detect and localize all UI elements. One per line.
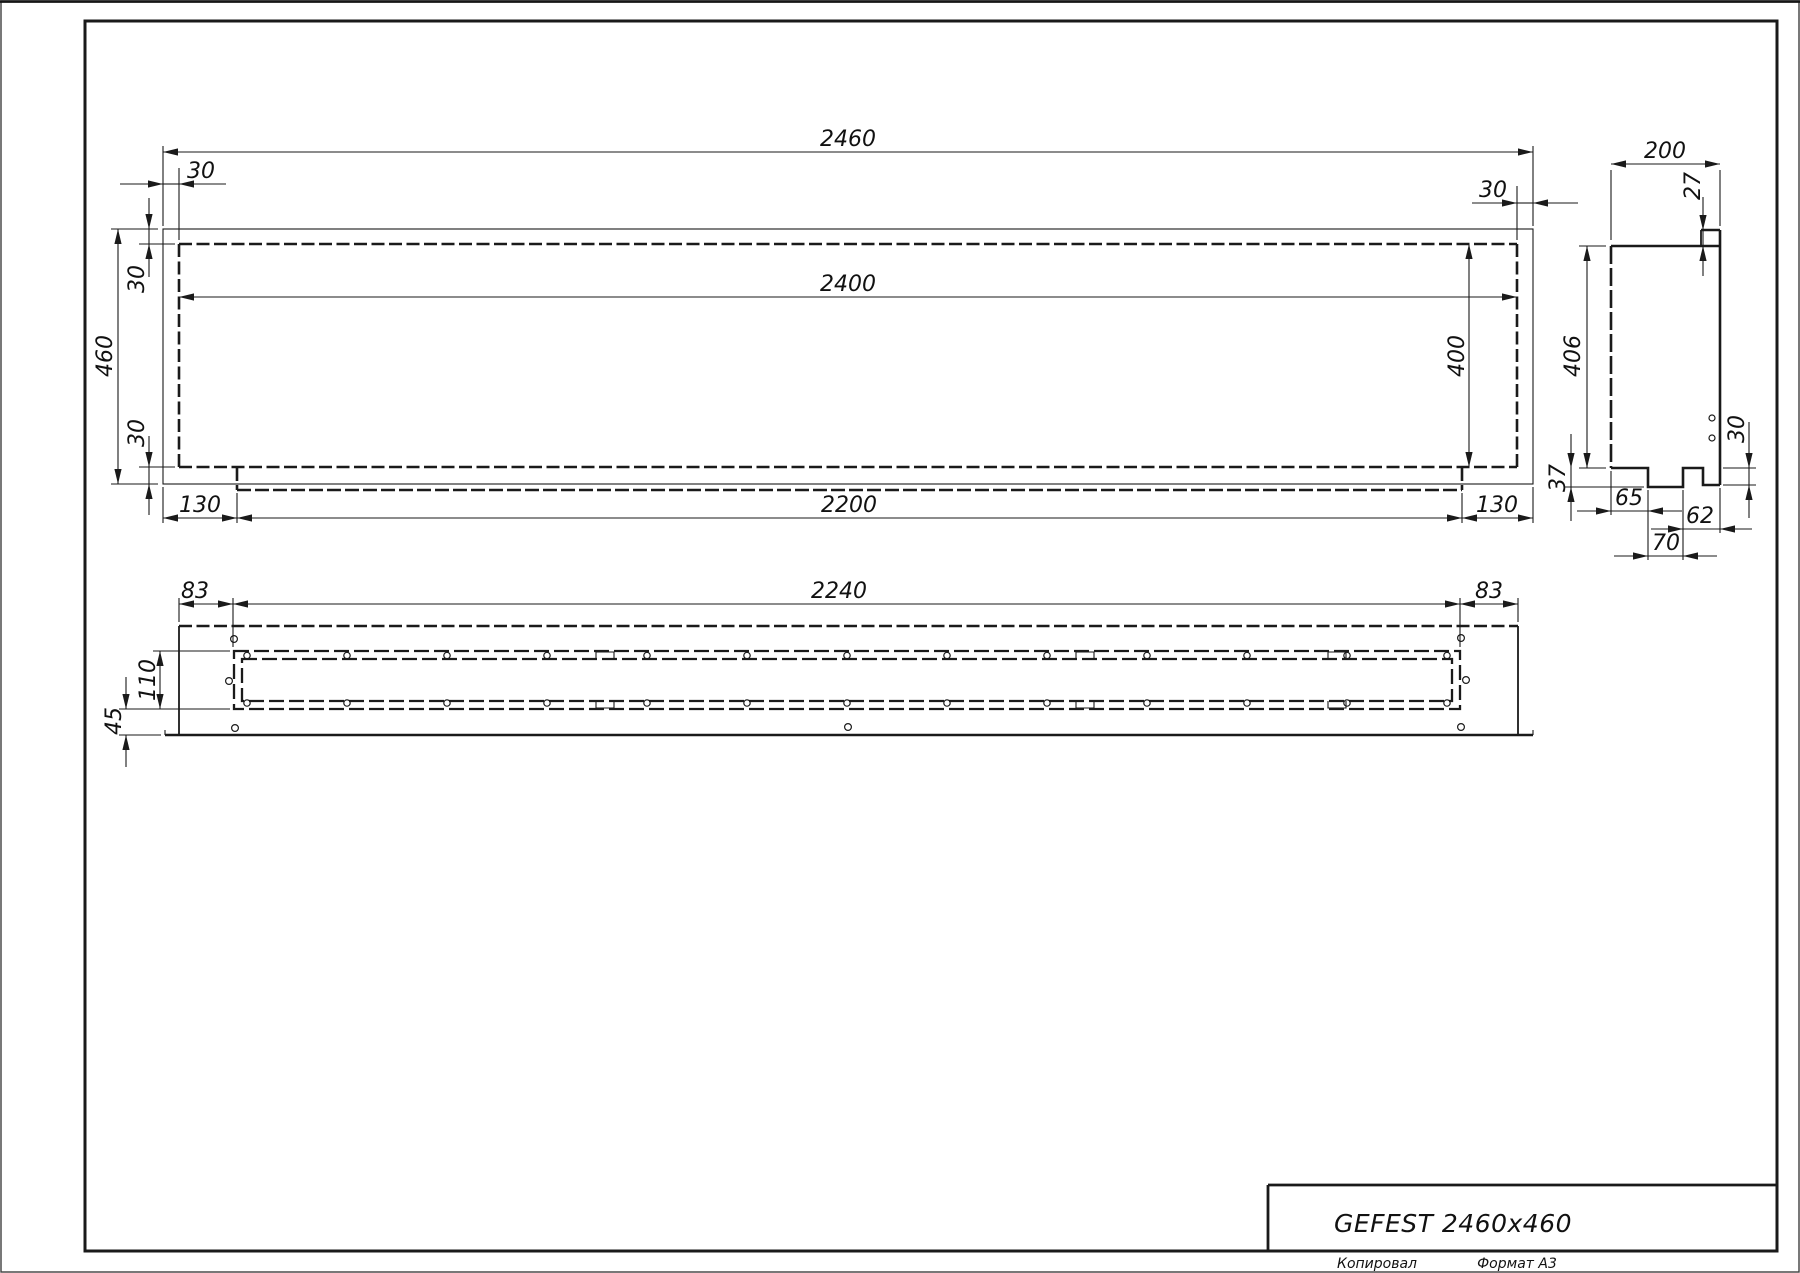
plan-dimension-lines: [126, 604, 1518, 767]
dim-side-flange-drop: 30: [1725, 415, 1750, 443]
footer-format-label: Формат А3: [1477, 1256, 1557, 1272]
front-bottom-strip: [237, 467, 1462, 490]
front-flange-outline: [163, 229, 1533, 484]
dim-side-step-width: 70: [1652, 531, 1680, 556]
drawing-canvas: 2460 30 30 2400 460 30 30 130 2200 130 4…: [0, 0, 1800, 1273]
front-dimension-lines: [118, 152, 1578, 518]
dim-front-body-height: 400: [1445, 335, 1470, 377]
front-view: 2460 30 30 2400 460 30 30 130 2200 130 4…: [93, 127, 1578, 523]
dim-front-side-top: 30: [125, 265, 150, 293]
plan-slot-inner: [242, 659, 1452, 701]
side-view: 200 27 406 37 65 62 70 30: [1546, 139, 1756, 560]
title-block: GEFEST 2460x460: [1268, 1185, 1777, 1251]
dim-plan-slot-length: 2240: [811, 579, 867, 604]
dim-plan-margin-left: 83: [181, 579, 209, 604]
side-outline: [1611, 230, 1720, 487]
dim-side-depth: 200: [1644, 139, 1686, 164]
dim-front-overhang-top-right: 30: [1479, 178, 1507, 203]
side-dimension-lines: [1571, 164, 1752, 556]
dim-plan-front-offset: 45: [102, 707, 127, 735]
dim-side-step-height: 37: [1546, 464, 1571, 492]
sheet-footer: Копировал Формат А3: [1337, 1256, 1557, 1272]
dim-front-total-height: 460: [93, 335, 118, 377]
dim-side-left-offset: 65: [1615, 486, 1643, 511]
sheet-border: [0, 1, 1800, 1272]
dim-front-bottom-right: 130: [1476, 493, 1518, 518]
side-holes: [1709, 415, 1715, 441]
dim-front-overhang-top-left: 30: [187, 159, 215, 184]
drawing-frame: [85, 21, 1777, 1251]
drawing-sheet: 2460 30 30 2400 460 30 30 130 2200 130 4…: [0, 0, 1800, 1273]
plan-extension-lines: [119, 598, 1518, 735]
dim-front-total-width: 2460: [820, 127, 876, 152]
side-extension-lines: [1564, 170, 1756, 560]
plan-clip-notches: [596, 652, 1346, 708]
plan-mounting-holes: [226, 635, 1470, 732]
dim-plan-margin-right: 83: [1475, 579, 1503, 604]
dim-front-side-bottom: 30: [125, 419, 150, 447]
footer-copied-label: Копировал: [1337, 1256, 1417, 1272]
dim-front-bottom-strip: 2200: [821, 493, 877, 518]
dim-side-right-offset: 62: [1686, 504, 1714, 529]
dim-front-body-width: 2400: [820, 272, 876, 297]
drawing-title: GEFEST 2460x460: [1334, 1209, 1572, 1238]
dim-front-bottom-left: 130: [179, 493, 221, 518]
dim-plan-slot-width: 110: [136, 659, 161, 701]
dim-side-height: 406: [1561, 335, 1586, 377]
plan-view: 83 2240 83 110 45: [102, 579, 1533, 767]
dim-side-lip: 27: [1681, 172, 1706, 200]
